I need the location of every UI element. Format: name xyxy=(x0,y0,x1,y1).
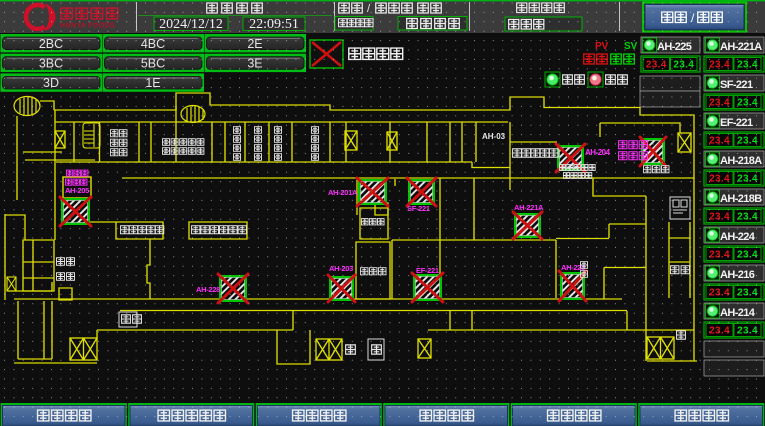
svg-text:AH-03: AH-03 xyxy=(482,132,506,141)
svg-text:23.4: 23.4 xyxy=(709,60,730,71)
svg-text:AH-218B: AH-218B xyxy=(720,193,762,205)
svg-text:AH-205: AH-205 xyxy=(65,186,89,195)
svg-text:23.4: 23.4 xyxy=(709,212,730,223)
svg-text:AH-224: AH-224 xyxy=(720,231,756,243)
svg-text:HUNYA FOODS: HUNYA FOODS xyxy=(60,23,115,30)
svg-text:SV: SV xyxy=(624,41,638,52)
svg-text:23.4: 23.4 xyxy=(737,136,758,147)
svg-text:AH-216: AH-216 xyxy=(720,269,755,281)
svg-text:5BC: 5BC xyxy=(141,57,165,71)
svg-text:AH-203: AH-203 xyxy=(329,264,353,273)
svg-text:2024/12/12: 2024/12/12 xyxy=(159,17,223,32)
svg-text:AH-201A: AH-201A xyxy=(328,188,358,197)
svg-text:AH-225: AH-225 xyxy=(657,41,692,53)
svg-text:23.4: 23.4 xyxy=(709,98,730,109)
svg-text:AH-228: AH-228 xyxy=(196,285,220,294)
svg-text:23.4: 23.4 xyxy=(709,136,730,147)
svg-text:SF-221: SF-221 xyxy=(720,79,753,91)
svg-text:23.4: 23.4 xyxy=(709,288,730,299)
svg-text:23.4: 23.4 xyxy=(737,326,758,337)
svg-text:AH-221A: AH-221A xyxy=(720,41,762,53)
svg-text:23.4: 23.4 xyxy=(737,174,758,185)
svg-text:23.4: 23.4 xyxy=(737,288,758,299)
svg-text:EF-221: EF-221 xyxy=(416,266,439,275)
svg-text:1E: 1E xyxy=(145,76,160,90)
svg-text:4BC: 4BC xyxy=(141,37,165,51)
svg-text:23.4: 23.4 xyxy=(646,60,667,71)
svg-text:23.4: 23.4 xyxy=(709,326,730,337)
svg-text:23.4: 23.4 xyxy=(709,174,730,185)
svg-text:SF-221: SF-221 xyxy=(407,204,430,213)
svg-text:23.4: 23.4 xyxy=(737,212,758,223)
svg-text:AH-221A: AH-221A xyxy=(514,203,544,212)
svg-text:2E: 2E xyxy=(247,37,262,51)
svg-text:AH-204: AH-204 xyxy=(585,148,611,157)
svg-text:3E: 3E xyxy=(247,57,262,71)
svg-text:AH-218A: AH-218A xyxy=(720,155,762,167)
svg-text:EF-221: EF-221 xyxy=(720,117,753,129)
svg-text:2BC: 2BC xyxy=(39,37,63,51)
svg-text:23.4: 23.4 xyxy=(737,250,758,261)
svg-text:22:09:51: 22:09:51 xyxy=(249,17,299,32)
svg-text:23.4: 23.4 xyxy=(709,250,730,261)
